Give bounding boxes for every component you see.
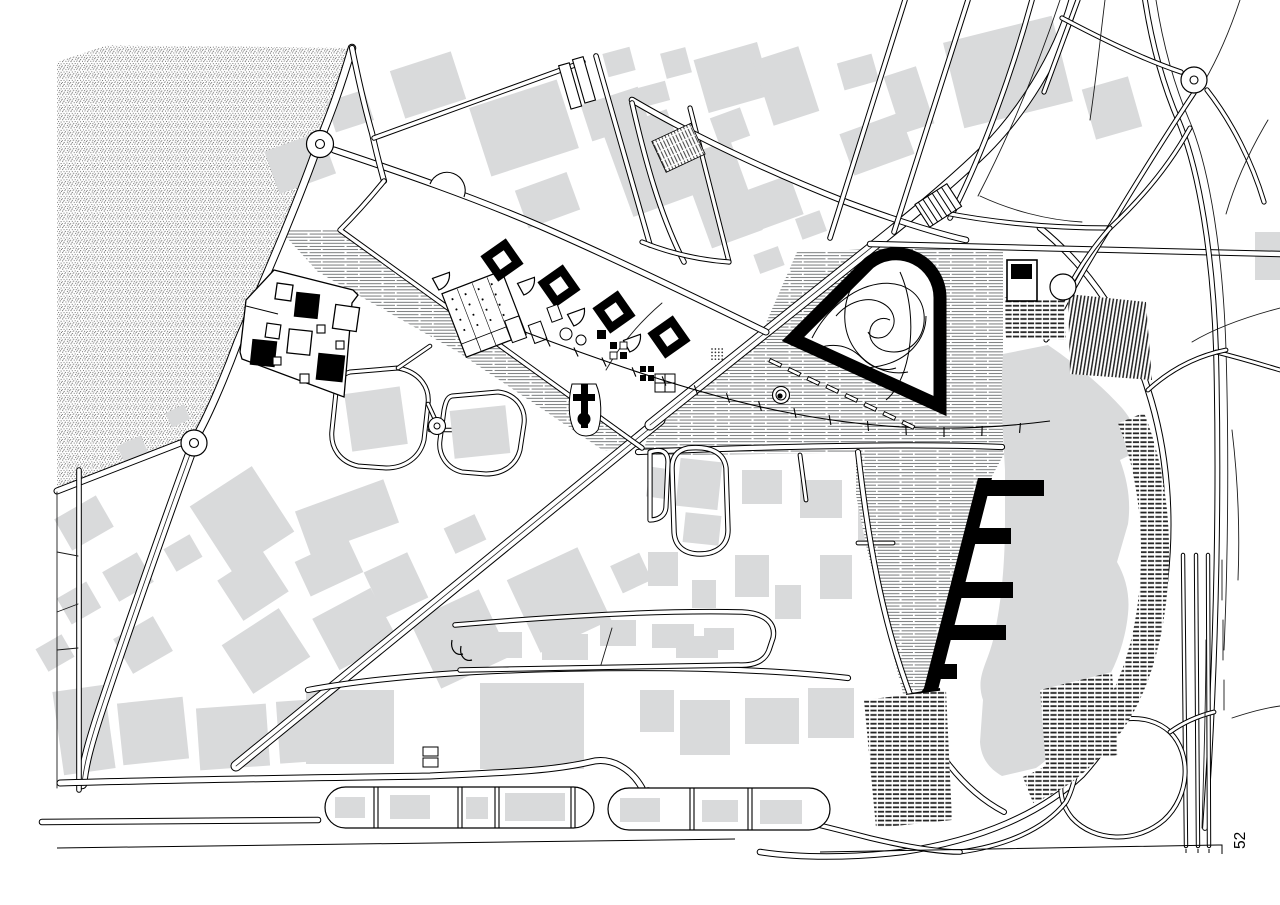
svg-text:52: 52 bbox=[1232, 832, 1249, 849]
